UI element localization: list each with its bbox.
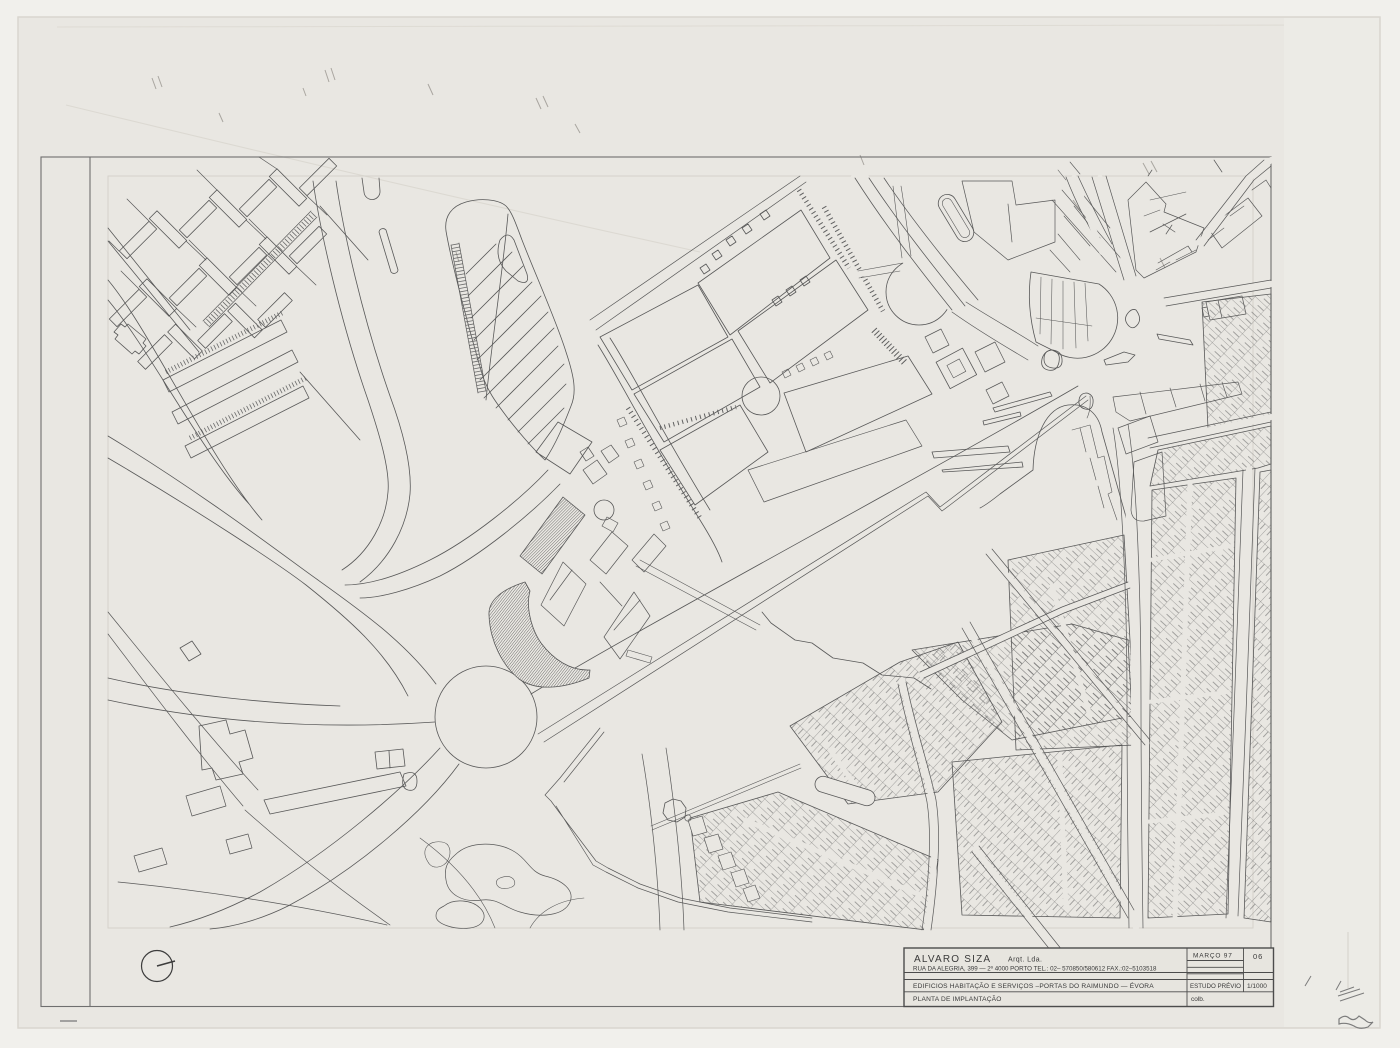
- svg-text:PLANTA DE IMPLANTAÇÃO: PLANTA DE IMPLANTAÇÃO: [913, 994, 1002, 1003]
- svg-text:1/1000: 1/1000: [1247, 983, 1267, 990]
- svg-text:Arqt. Lda.: Arqt. Lda.: [1008, 957, 1042, 964]
- svg-text:EDIFICIOS HABITAÇÃO E SERVI: EDIFICIOS HABITAÇÃO E SERVIÇOS –PORTAS D…: [913, 981, 1154, 990]
- svg-text:MARÇO 97: MARÇO 97: [1193, 953, 1233, 960]
- svg-text:ALVARO SIZA: ALVARO SIZA: [914, 954, 991, 965]
- svg-text:ESTUDO PRÉVIO: ESTUDO PRÉVIO: [1190, 983, 1241, 990]
- svg-text:RUA DA ALEGRIA, 399 — 2º: RUA DA ALEGRIA, 399 — 2º 4000 PORTO TEL.…: [913, 966, 1157, 973]
- svg-text:colb.: colb.: [1191, 996, 1205, 1003]
- svg-text:06: 06: [1253, 952, 1263, 961]
